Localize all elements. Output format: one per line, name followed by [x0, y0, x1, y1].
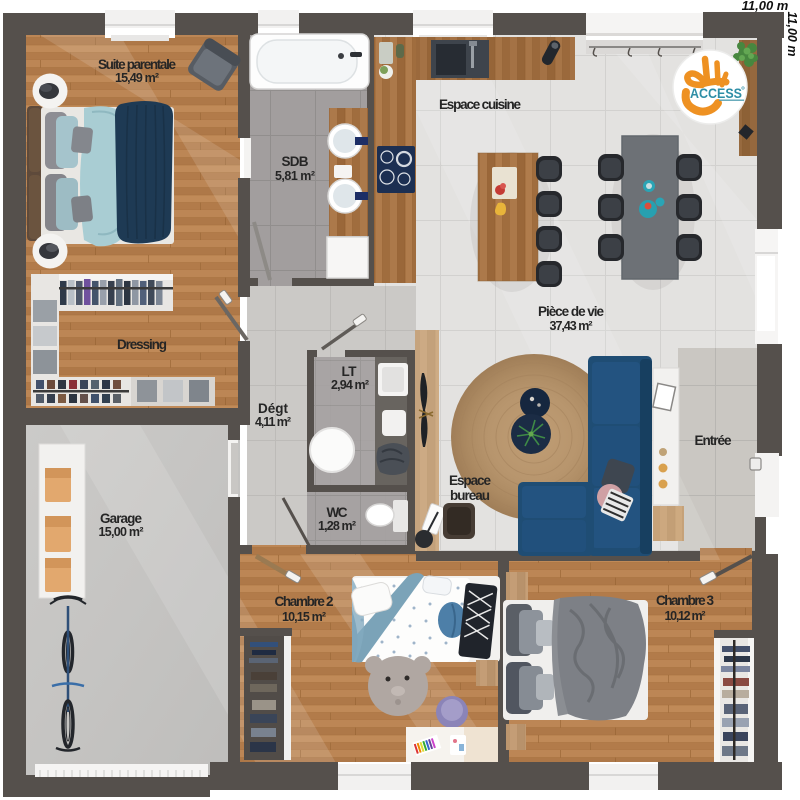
svg-text:LT: LT: [342, 364, 358, 379]
svg-text:Dégt: Dégt: [258, 401, 289, 416]
svg-text:11,00 m: 11,00 m: [742, 0, 789, 13]
svg-text:15,00 m²: 15,00 m²: [99, 525, 144, 539]
svg-text:10,12 m²: 10,12 m²: [665, 609, 706, 623]
svg-text:37,43 m²: 37,43 m²: [550, 319, 593, 333]
svg-text:Chambre 2: Chambre 2: [275, 594, 334, 609]
svg-text:5,81 m²: 5,81 m²: [275, 169, 315, 183]
svg-text:SDB: SDB: [282, 154, 309, 169]
svg-text:2,94 m²: 2,94 m²: [331, 378, 369, 392]
svg-text:Dressing: Dressing: [117, 337, 167, 352]
svg-text:ACCESS: ACCESS: [690, 86, 742, 101]
svg-text:15,49 m²: 15,49 m²: [115, 71, 159, 85]
svg-text:4,11 m²: 4,11 m²: [255, 415, 291, 429]
svg-text:Pièce de vie: Pièce de vie: [538, 304, 604, 319]
svg-text:Suite parentale: Suite parentale: [98, 57, 176, 72]
svg-text:Garage: Garage: [100, 511, 142, 526]
svg-text:Chambre 3: Chambre 3: [656, 593, 714, 608]
svg-text:10,15 m²: 10,15 m²: [282, 610, 326, 624]
svg-text:Espace: Espace: [449, 473, 491, 488]
svg-text:bureau: bureau: [450, 488, 490, 503]
svg-text:WC: WC: [327, 505, 348, 520]
svg-text:1,28 m²: 1,28 m²: [318, 519, 356, 533]
svg-text:11,00 m: 11,00 m: [785, 12, 799, 57]
svg-text:Entrée: Entrée: [695, 433, 732, 448]
svg-text:Espace cuisine: Espace cuisine: [439, 97, 521, 112]
